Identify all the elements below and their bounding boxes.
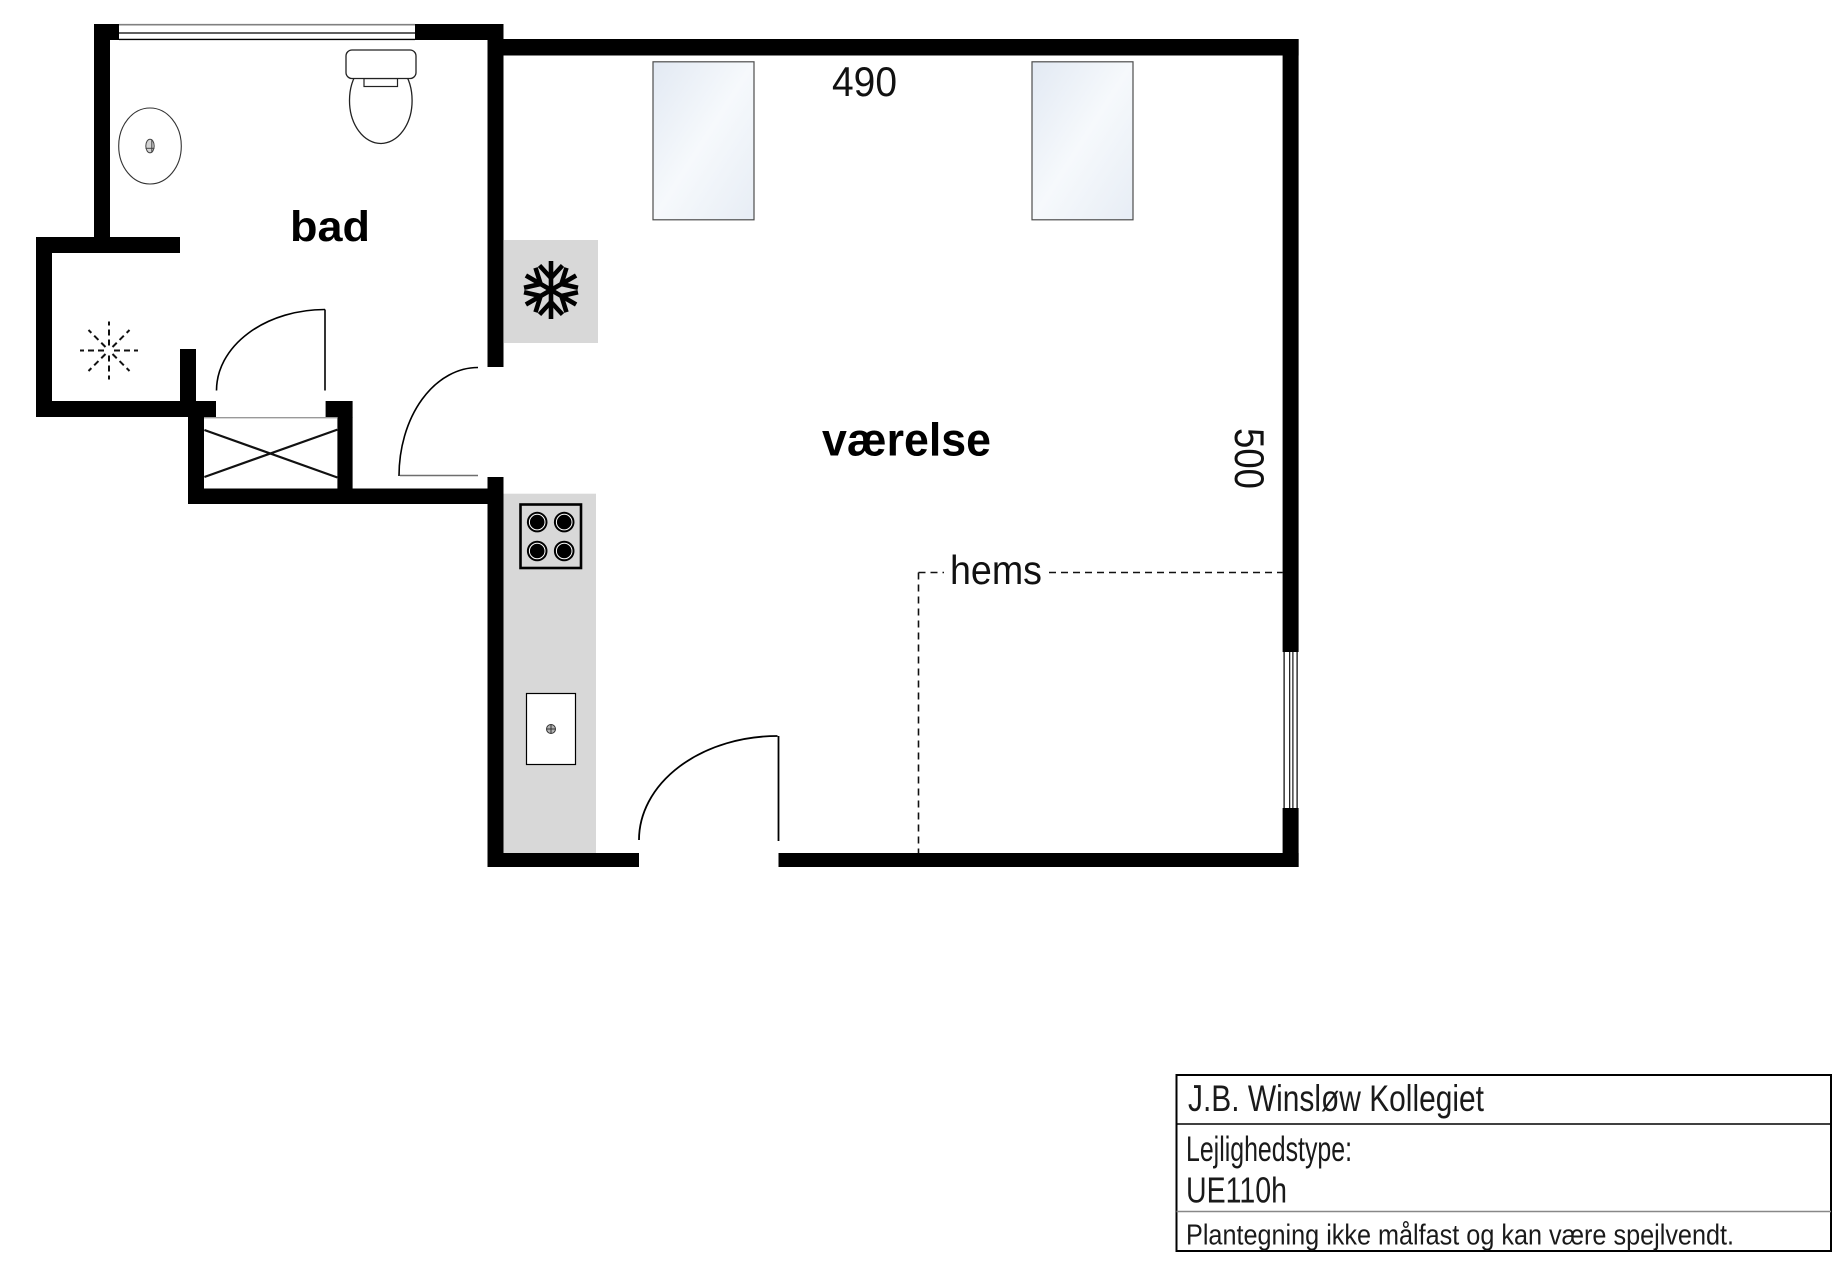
svg-text:hems: hems <box>950 547 1042 593</box>
svg-text:490: 490 <box>832 58 897 105</box>
svg-text:J.B. Winsløw Kollegiet: J.B. Winsløw Kollegiet <box>1188 1078 1485 1119</box>
svg-text:bad: bad <box>290 203 370 251</box>
svg-text:UE110h: UE110h <box>1186 1170 1287 1211</box>
svg-text:500: 500 <box>1226 428 1273 489</box>
svg-text:Plantegning ikke målfast og ka: Plantegning ikke målfast og kan være spe… <box>1186 1220 1734 1252</box>
svg-text:værelse: værelse <box>822 414 991 466</box>
svg-text:Lejlighedstype:: Lejlighedstype: <box>1186 1130 1352 1169</box>
